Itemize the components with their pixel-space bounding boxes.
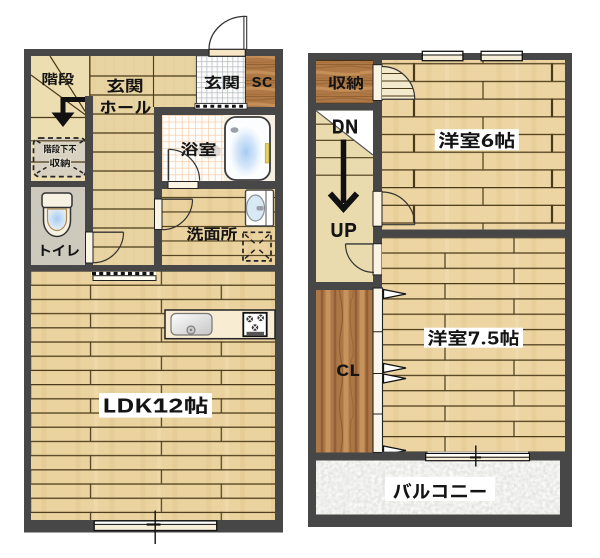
svg-text:収納: 収納	[328, 73, 364, 96]
svg-text:洋室6帖: 洋室6帖	[438, 128, 515, 155]
svg-text:洗面所: 洗面所	[187, 224, 238, 247]
svg-text:浴室: 浴室	[181, 139, 217, 162]
svg-text:バルコニー: バルコニー	[393, 479, 488, 506]
svg-text:トイレ: トイレ	[38, 242, 81, 262]
svg-text:UP: UP	[330, 218, 357, 246]
svg-text:洋室7.5帖: 洋室7.5帖	[428, 326, 520, 353]
svg-text:ホール: ホール	[100, 97, 152, 120]
svg-text:玄関: 玄関	[107, 76, 144, 99]
svg-text:DN: DN	[332, 115, 359, 143]
svg-text:階段: 階段	[42, 70, 75, 90]
svg-text:収納: 収納	[50, 158, 71, 172]
svg-text:玄関: 玄関	[204, 72, 240, 95]
svg-text:階段下不: 階段下不	[44, 144, 77, 158]
svg-text:LDK12帖: LDK12帖	[103, 394, 209, 422]
svg-text:CL: CL	[336, 360, 360, 384]
svg-text:SC: SC	[252, 73, 273, 93]
